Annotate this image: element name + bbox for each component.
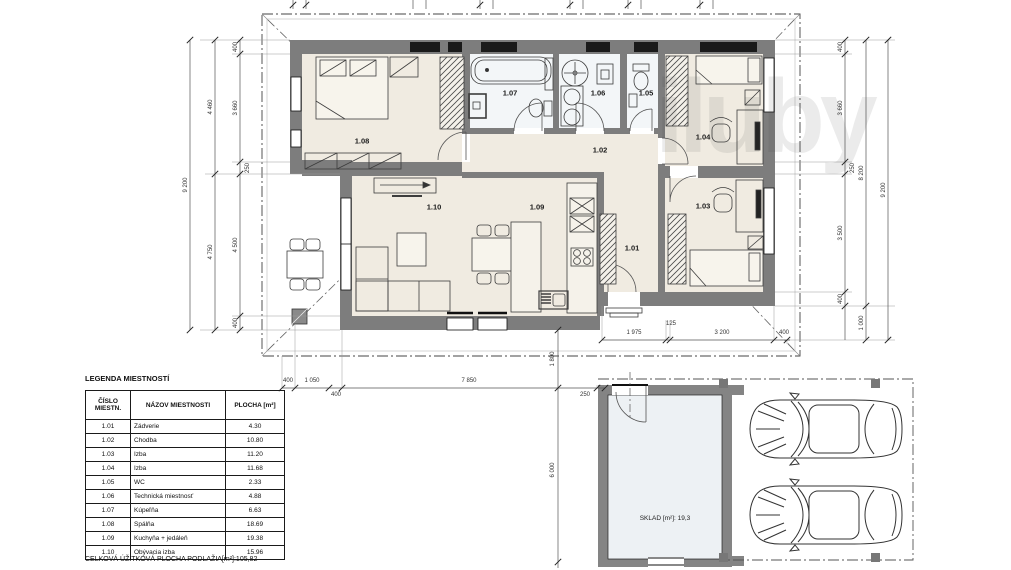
legend-row: 1.05WC2.33 bbox=[86, 476, 285, 490]
dim-label: 400 bbox=[283, 378, 293, 384]
legend-col-number: ČÍSLO MIESTN. bbox=[86, 391, 131, 420]
room-label-1-04: 1.04 bbox=[696, 133, 711, 142]
room-number: 1.07 bbox=[86, 504, 131, 518]
dim-label: 4 460 bbox=[208, 99, 214, 114]
sklad-building bbox=[598, 372, 744, 567]
legend-row: 1.06Technická miestnosť4.88 bbox=[86, 490, 285, 504]
wet-rooms-floor bbox=[462, 54, 658, 134]
legend-row: 1.02Chodba10.80 bbox=[86, 434, 285, 448]
room-name: Technická miestnosť bbox=[131, 490, 226, 504]
room-number: 1.05 bbox=[86, 476, 131, 490]
room-name: Spálňa bbox=[131, 518, 226, 532]
dim-label: 9 200 bbox=[881, 182, 887, 197]
dim-label: 6 000 bbox=[550, 462, 556, 477]
dim-label: 3 200 bbox=[714, 330, 729, 336]
room-number: 1.08 bbox=[86, 518, 131, 532]
dim-label: 125 bbox=[666, 321, 676, 327]
room-area: 18.69 bbox=[226, 518, 285, 532]
room-name: WC bbox=[131, 476, 226, 490]
terrace-furniture bbox=[287, 239, 323, 324]
dim-label: 250 bbox=[850, 163, 856, 173]
room-name: Kuchyňa + jedáleň bbox=[131, 532, 226, 546]
dim-label: 250 bbox=[245, 163, 251, 173]
dim-label: 3 660 bbox=[838, 100, 844, 115]
dim-label: 400 bbox=[838, 42, 844, 52]
car-top-view bbox=[750, 479, 902, 551]
room-label-1-06: 1.06 bbox=[591, 89, 606, 98]
room-name: Zádverie bbox=[131, 420, 226, 434]
legend-row: 1.08Spálňa18.69 bbox=[86, 518, 285, 532]
room-label-1-02: 1.02 bbox=[593, 146, 608, 155]
legend-header-row: ČÍSLO MIESTN. NÁZOV MIESTNOSTI PLOCHA [m… bbox=[86, 391, 285, 420]
legend-row: 1.03Izba11.20 bbox=[86, 448, 285, 462]
room-label-1-03: 1.03 bbox=[696, 202, 711, 211]
legend-row: 1.01Zádverie4.30 bbox=[86, 420, 285, 434]
sklad-label: SKLAD [m²]: 19,3 bbox=[600, 515, 730, 522]
blueprint-canvas: iluby 1.08 1.07 1.06 1.05 1.04 1.02 1.10… bbox=[0, 0, 1011, 570]
room-area: 4.88 bbox=[226, 490, 285, 504]
room-number: 1.06 bbox=[86, 490, 131, 504]
dim-label: 400 bbox=[838, 294, 844, 304]
dim-label: 400 bbox=[779, 330, 789, 336]
room-area: 4.30 bbox=[226, 420, 285, 434]
legend-row: 1.04Izba11.68 bbox=[86, 462, 285, 476]
dim-label: 9 200 bbox=[183, 177, 189, 192]
legend-title: LEGENDA MIESTNOSTÍ bbox=[85, 374, 169, 383]
room-area: 6.63 bbox=[226, 504, 285, 518]
room-area: 11.20 bbox=[226, 448, 285, 462]
dim-label: 250 bbox=[580, 392, 590, 398]
dim-label: 3 660 bbox=[233, 100, 239, 115]
room-area: 10.80 bbox=[226, 434, 285, 448]
legend-col-area: PLOCHA [m²] bbox=[226, 391, 285, 420]
dim-label: 4 500 bbox=[233, 237, 239, 252]
dim-label: 400 bbox=[233, 42, 239, 52]
legend-col-name: NÁZOV MIESTNOSTI bbox=[131, 391, 226, 420]
legend-total-area: CELKOVÁ ÚŽITKOVÁ PLOCHA PODLAŽIA[m²]:105… bbox=[85, 556, 257, 563]
room-label-1-08: 1.08 bbox=[355, 137, 370, 146]
room-name: Izba bbox=[131, 462, 226, 476]
dim-label: 1 975 bbox=[626, 330, 641, 336]
room-number: 1.09 bbox=[86, 532, 131, 546]
car-top-view bbox=[750, 393, 902, 465]
room-number: 1.01 bbox=[86, 420, 131, 434]
dim-label: 400 bbox=[331, 392, 341, 398]
room-label-1-07: 1.07 bbox=[503, 89, 518, 98]
top-cropped-ticks bbox=[290, 0, 713, 9]
legend-table: ČÍSLO MIESTN. NÁZOV MIESTNOSTI PLOCHA [m… bbox=[85, 390, 285, 560]
room-area: 11.68 bbox=[226, 462, 285, 476]
dim-label: 3 500 bbox=[838, 225, 844, 240]
dim-label: 400 bbox=[233, 318, 239, 328]
room-label-1-01: 1.01 bbox=[625, 244, 640, 253]
room-number: 1.03 bbox=[86, 448, 131, 462]
room-number: 1.02 bbox=[86, 434, 131, 448]
room-area: 2.33 bbox=[226, 476, 285, 490]
dim-label: 4 750 bbox=[208, 244, 214, 259]
room-name: Kúpeľňa bbox=[131, 504, 226, 518]
room-label-1-09: 1.09 bbox=[530, 203, 545, 212]
room-name: Izba bbox=[131, 448, 226, 462]
dim-label: 1 000 bbox=[859, 315, 865, 330]
room-name: Chodba bbox=[131, 434, 226, 448]
dim-label: 8 200 bbox=[859, 165, 865, 180]
legend-row: 1.09Kuchyňa + jedáleň19.38 bbox=[86, 532, 285, 546]
legend-row: 1.07Kúpeľňa6.63 bbox=[86, 504, 285, 518]
room-label-1-10: 1.10 bbox=[427, 203, 442, 212]
dim-label: 1 800 bbox=[550, 351, 556, 366]
dim-label: 1 050 bbox=[304, 378, 319, 384]
dim-label: 7 850 bbox=[461, 378, 476, 384]
room-number: 1.04 bbox=[86, 462, 131, 476]
room-label-1-05: 1.05 bbox=[639, 89, 654, 98]
room-area: 19.38 bbox=[226, 532, 285, 546]
